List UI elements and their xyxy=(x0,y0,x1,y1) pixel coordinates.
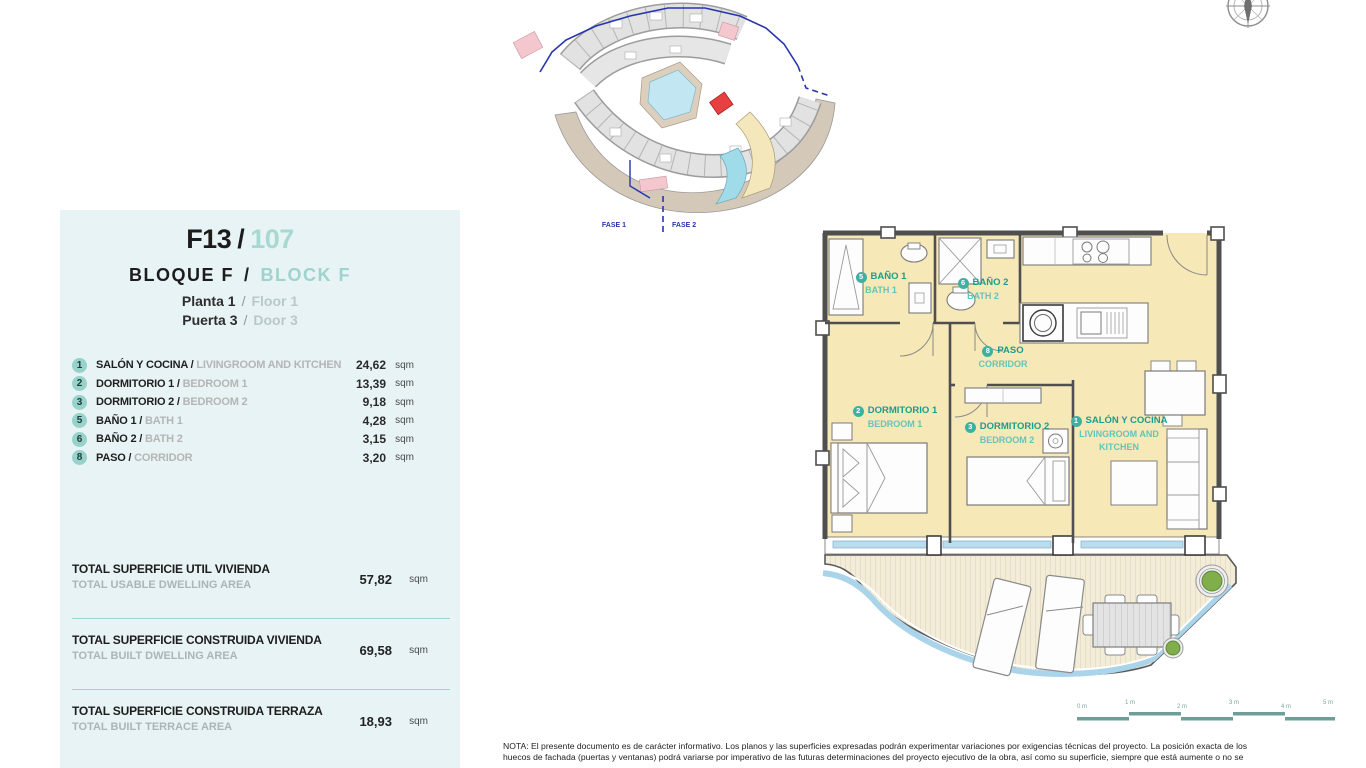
legal-note-line2: huecos de fachada (puertas y ventanas) p… xyxy=(503,752,1315,763)
scale-tick-label: 1 m xyxy=(1125,700,1135,706)
room-number-badge: 2 xyxy=(853,406,864,417)
room-number-badge: 3 xyxy=(965,422,976,433)
room-row-salon: 1 SALÓN Y COCINA / LIVINGROOM AND KITCHE… xyxy=(72,356,448,375)
fase2-label: FASE 2 xyxy=(672,222,696,229)
plan-label-paso: 8PASO CORRIDOR xyxy=(957,345,1049,370)
door-es: Puerta 3 xyxy=(182,312,237,328)
total-built-dwelling-area: TOTAL SUPERFICIE CONSTRUIDA VIVIENDA TOT… xyxy=(72,633,450,675)
scale-bar: 0 m 1 m 2 m 3 m 4 m 5 m xyxy=(1077,700,1335,721)
room-row-bath2: 6 BAÑO 2 / BATH 2 3,15 sqm xyxy=(72,430,448,449)
dining-table xyxy=(1145,371,1205,415)
planter xyxy=(1163,638,1183,658)
legal-note-line1: NOTA: El presente documento es de caráct… xyxy=(503,741,1315,752)
door-en: Door 3 xyxy=(253,312,297,328)
door-line: Puerta 3/Door 3 xyxy=(60,312,420,328)
total-value: 18,93 xyxy=(359,714,392,729)
unit-code: F13 xyxy=(186,224,231,254)
scale-tick-label: 3 m xyxy=(1229,700,1239,706)
scale-tick-label: 2 m xyxy=(1177,704,1187,710)
site-plan-drawing: FASE 1 FASE 2 xyxy=(500,0,845,238)
scale-tick-label: 0 m xyxy=(1077,704,1087,710)
plan-label-bath2: 6BAÑO 2 BATH 2 xyxy=(935,277,1031,302)
rug xyxy=(1111,461,1157,505)
room-number-badge: 6 xyxy=(958,278,969,289)
divider xyxy=(72,618,450,619)
total-built-terrace-area: TOTAL SUPERFICIE CONSTRUIDA TERRAZA TOTA… xyxy=(72,704,450,746)
block-line: BLOQUE F/BLOCK F xyxy=(60,265,420,286)
room-number-badge: 5 xyxy=(856,272,867,283)
room-number-badge: 5 xyxy=(72,413,87,428)
total-value: 69,58 xyxy=(359,643,392,658)
site-highlighted-unit xyxy=(710,92,733,115)
room-row-bedroom1: 2 DORMITORIO 1 / BEDROOM 1 13,39 sqm xyxy=(72,375,448,394)
room-row-bedroom2: 3 DORMITORIO 2 / BEDROOM 2 9,18 sqm xyxy=(72,393,448,412)
floor-plan-drawing: 0 m 1 m 2 m 3 m 4 m 5 m xyxy=(815,225,1345,735)
room-number-badge: 3 xyxy=(72,395,87,410)
floor-line: Planta 1/Floor 1 xyxy=(60,293,420,309)
room-area: 4,28 xyxy=(363,414,386,428)
room-number-badge: 1 xyxy=(72,358,87,373)
plan-label-bedroom1: 2DORMITORIO 1 BEDROOM 1 xyxy=(835,405,955,430)
block-es: BLOQUE F xyxy=(129,265,234,285)
total-usable-area: TOTAL SUPERFICIE UTIL VIVIENDA TOTAL USA… xyxy=(72,562,450,604)
room-number-badge: 1 xyxy=(1071,416,1082,427)
floor-es: Planta 1 xyxy=(182,293,236,309)
compass-icon xyxy=(1222,0,1274,34)
room-area: 9,18 xyxy=(363,395,386,409)
legal-note: NOTA: El presente documento es de caráct… xyxy=(503,741,1315,763)
unit-title: F13/107 xyxy=(60,224,420,255)
unit-info-panel: F13/107 BLOQUE F/BLOCK F Planta 1/Floor … xyxy=(60,210,460,768)
room-area: 3,20 xyxy=(363,451,386,465)
scale-tick-label: 5 m xyxy=(1323,700,1333,706)
room-number-badge: 2 xyxy=(72,376,87,391)
floor-plan: 0 m 1 m 2 m 3 m 4 m 5 m 5BAÑO 1 BATH 1 6… xyxy=(815,225,1345,735)
unit-number: 107 xyxy=(250,224,294,254)
floor-en: Floor 1 xyxy=(251,293,298,309)
block-en: BLOCK F xyxy=(261,265,352,285)
fase1-label: FASE 1 xyxy=(602,222,626,229)
room-row-bath1: 5 BAÑO 1 / BATH 1 4,28 sqm xyxy=(72,412,448,431)
terrace-windows xyxy=(825,536,1219,555)
plan-label-bath1: 5BAÑO 1 BATH 1 xyxy=(833,271,929,296)
room-area: 13,39 xyxy=(356,377,386,391)
scale-tick-label: 4 m xyxy=(1281,704,1291,710)
room-number-badge: 8 xyxy=(72,450,87,465)
planter xyxy=(1196,565,1228,597)
room-list: 1 SALÓN Y COCINA / LIVINGROOM AND KITCHE… xyxy=(72,356,448,467)
total-value: 57,82 xyxy=(359,572,392,587)
room-row-paso: 8 PASO / CORRIDOR 3,20 sqm xyxy=(72,449,448,468)
site-plan: FASE 1 FASE 2 xyxy=(500,0,845,238)
totals-section: TOTAL SUPERFICIE UTIL VIVIENDA TOTAL USA… xyxy=(72,562,450,760)
unit-header: F13/107 BLOQUE F/BLOCK F Planta 1/Floor … xyxy=(60,224,420,328)
room-area: 3,15 xyxy=(363,432,386,446)
room-area: 24,62 xyxy=(356,358,386,372)
divider xyxy=(72,689,450,690)
plan-label-bedroom2: 3DORMITORIO 2 BEDROOM 2 xyxy=(947,421,1067,446)
room-number-badge: 6 xyxy=(72,432,87,447)
room-number-badge: 8 xyxy=(982,346,993,357)
plan-label-salon: 1SALÓN Y COCINA LIVINGROOM AND KITCHEN xyxy=(1063,415,1175,453)
